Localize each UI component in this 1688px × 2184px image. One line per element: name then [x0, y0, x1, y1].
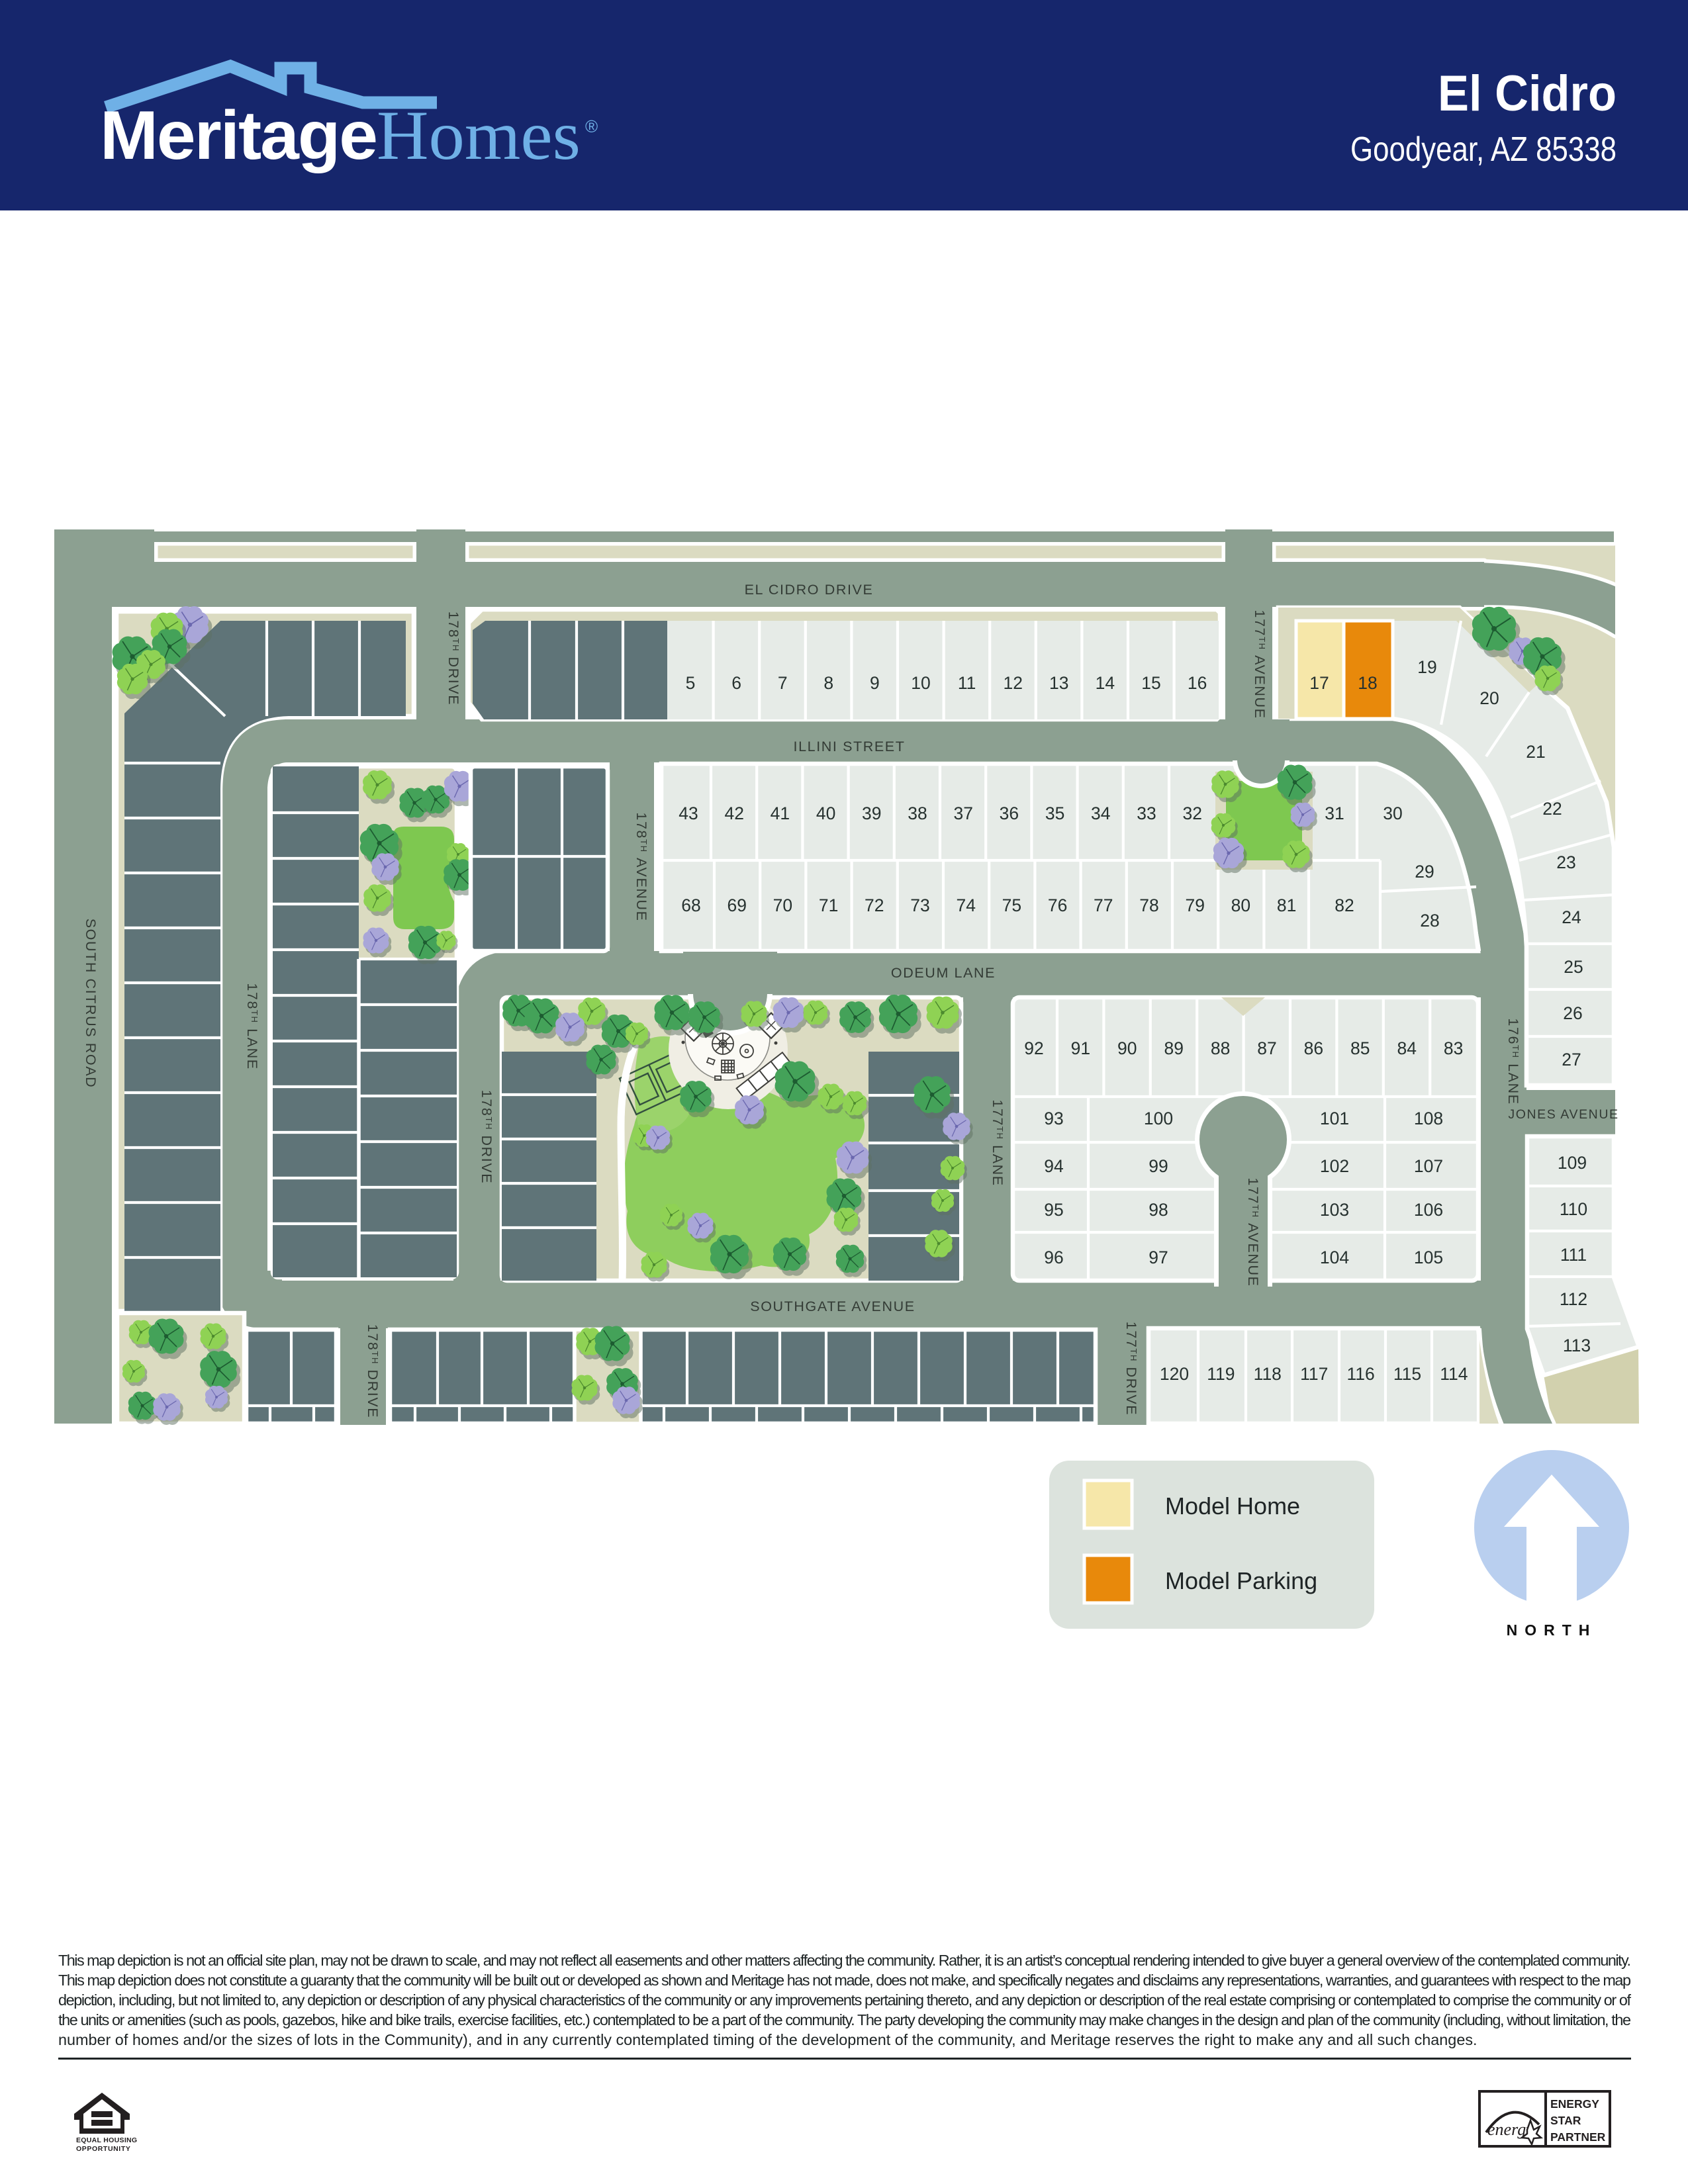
svg-text:This map depiction is not an o: This map depiction is not an official si… [58, 1952, 1631, 1969]
svg-text:depiction, including, but not: depiction, including, but not limited to… [58, 1991, 1631, 2009]
svg-text:the units or amenities (such a: the units or amenities (such as pools, g… [58, 2011, 1631, 2028]
svg-text:number of homes and/or the siz: number of homes and/or the sizes of lots… [58, 2031, 1477, 2048]
svg-text:This map depiction does not co: This map depiction does not constitute a… [58, 1972, 1631, 1989]
